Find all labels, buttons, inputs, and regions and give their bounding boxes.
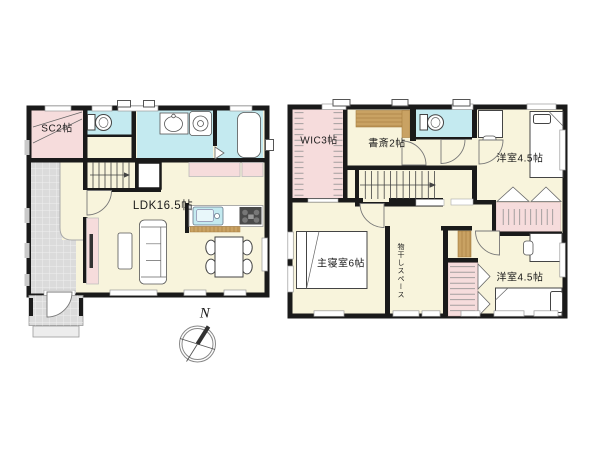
- room-label-study: 書斎2帖: [368, 135, 406, 150]
- kitchen-counter-storage-left: [189, 163, 240, 177]
- room-label-western-room-bottom: 洋室4.5帖: [497, 269, 544, 284]
- room-label-wic: WIC3帖: [300, 132, 338, 147]
- hall-shelf: [458, 231, 471, 257]
- toilet-icon-2f: [420, 115, 444, 131]
- bed-top-right: [530, 112, 563, 178]
- tv-icon: [90, 234, 94, 268]
- washing-machine-icon: [190, 112, 212, 136]
- hall-opening-b: [451, 199, 473, 205]
- plan-first-floor: [25, 101, 274, 338]
- porch-step: [33, 326, 79, 337]
- dining-table: [215, 237, 243, 277]
- room-label-master-bedroom: 主寝室6帖: [317, 255, 365, 270]
- wic-opening: [308, 199, 338, 202]
- kitchen-counter-storage-right: [242, 163, 263, 177]
- room-label-western-room-top: 洋室4.5帖: [497, 150, 544, 165]
- room-label-shoe-closet: SC2帖: [41, 120, 72, 135]
- floorplan-drawing: [0, 0, 600, 450]
- room-label-ldk: LDK16.5帖: [133, 197, 193, 213]
- sofa: [140, 220, 167, 284]
- room-label-laundry-space: 物干しスペース: [395, 243, 405, 299]
- hall-opening-a: [416, 200, 444, 206]
- tv-board: [87, 218, 99, 284]
- coffee-table: [118, 233, 132, 269]
- vanity-sink-icon: [160, 113, 188, 134]
- floorplan-page: SC2帖 LDK16.5帖 WIC3帖 書斎2帖 洋室4.5帖 主寝室6帖 物干…: [0, 0, 600, 450]
- bathtub-icon: [238, 113, 261, 158]
- pantry-nook: [138, 163, 161, 189]
- toilet-icon-1f: [88, 115, 112, 131]
- entrance-hall-step: [60, 161, 84, 240]
- shoe-closet-room: [32, 111, 84, 160]
- compass-north-label: N: [200, 306, 211, 323]
- compass-icon: [180, 326, 216, 362]
